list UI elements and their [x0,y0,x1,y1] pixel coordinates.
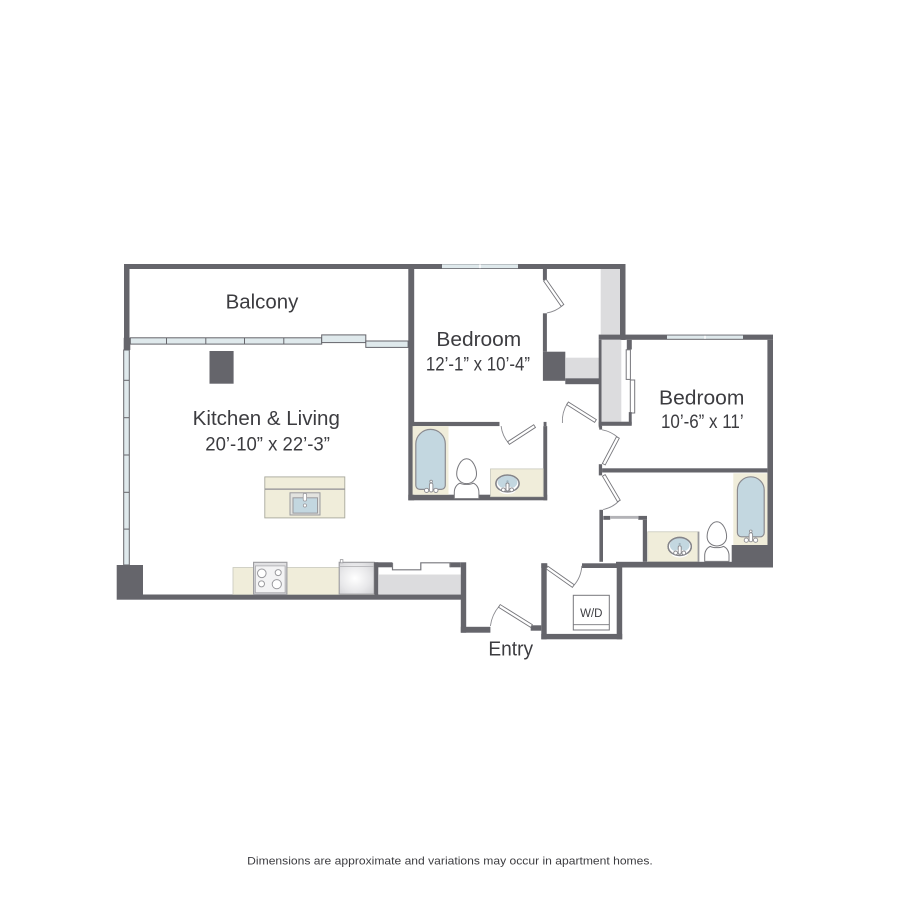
svg-text:10’-6” x 11’: 10’-6” x 11’ [661,411,744,433]
svg-text:20’-10” x 22’-3”: 20’-10” x 22’-3” [205,433,330,455]
svg-text:Dimensions are approximate and: Dimensions are approximate and variation… [247,856,653,868]
svg-text:Balcony: Balcony [226,290,299,313]
svg-text:Entry: Entry [488,638,533,661]
svg-text:Bedroom: Bedroom [659,387,744,410]
svg-text:W/D: W/D [580,608,602,620]
svg-text:Kitchen & Living: Kitchen & Living [193,407,340,430]
svg-text:12’-1” x 10’-4”: 12’-1” x 10’-4” [426,354,530,376]
svg-text:Bedroom: Bedroom [436,328,521,351]
